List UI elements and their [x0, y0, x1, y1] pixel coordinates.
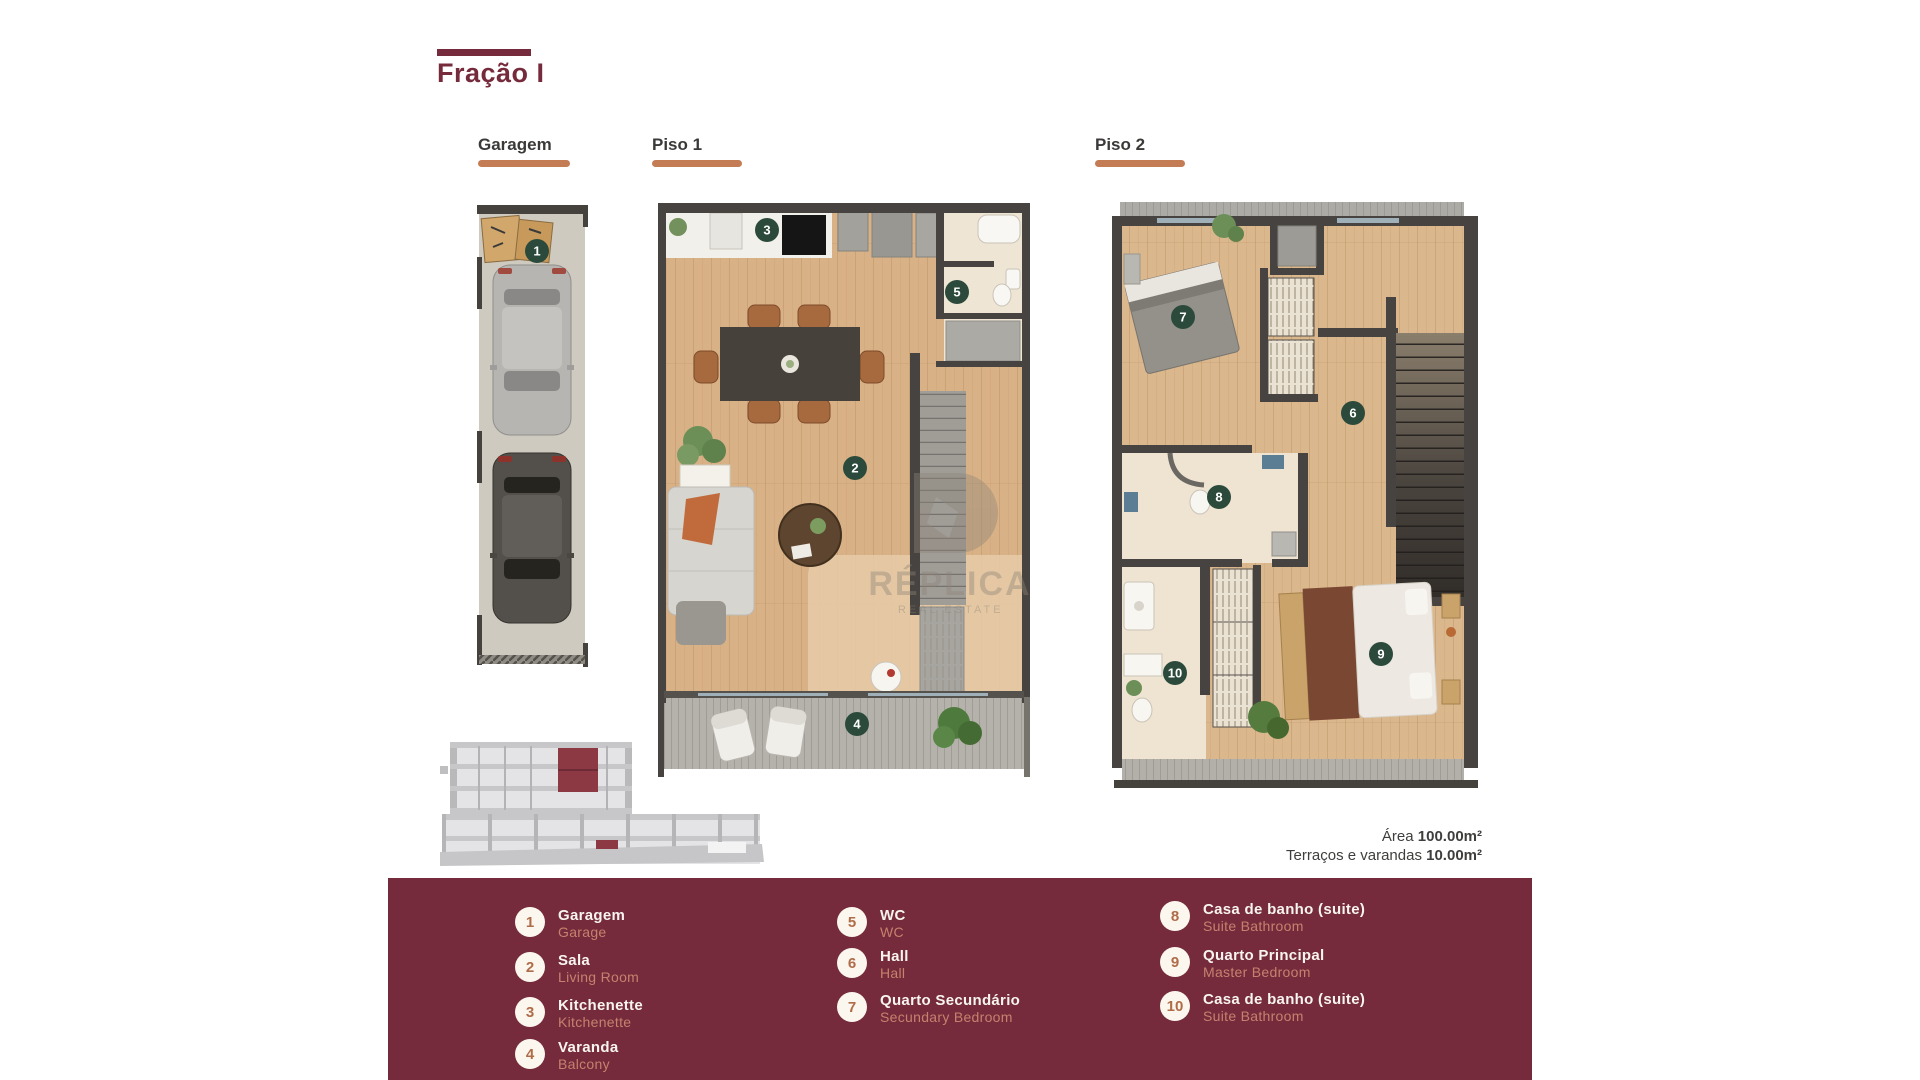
legend-item-wc: 5 WCWC	[837, 907, 906, 941]
stairs	[1396, 333, 1464, 605]
legend-item-casa-de-banho-10: 10 Casa de banho (suite)Suite Bathroom	[1160, 991, 1365, 1025]
svg-text:6: 6	[1349, 406, 1356, 421]
sink	[1262, 455, 1284, 469]
badge-5: 5	[945, 280, 969, 304]
page-title: Fração I	[437, 58, 545, 89]
badge-4: 4	[845, 712, 869, 736]
wardrobe-master	[1213, 569, 1253, 727]
plant-small	[1126, 680, 1142, 696]
terrace-line: Terraços e varandas 10.00m²	[1286, 846, 1482, 865]
nightstand	[1442, 594, 1460, 618]
legend-item-garagem: 1 GaragemGarage	[515, 907, 625, 941]
legend-item-quarto-principal: 9 Quarto PrincipalMaster Bedroom	[1160, 947, 1325, 981]
nightstand	[1442, 680, 1460, 704]
area-line: Área 100.00m²	[1286, 827, 1482, 846]
legend-item-varanda: 4 VarandaBalcony	[515, 1039, 618, 1073]
legend-item-casa-de-banho-8: 8 Casa de banho (suite)Suite Bathroom	[1160, 901, 1365, 935]
legend-number: 6	[837, 948, 867, 978]
bed-runner	[1303, 586, 1360, 720]
svg-text:2: 2	[851, 461, 858, 476]
shower-tray	[1272, 532, 1296, 556]
area-summary: Área 100.00m² Terraços e varandas 10.00m…	[1286, 827, 1482, 865]
legend-band: 1 GaragemGarage 2 SalaLiving Room 3 Kitc…	[388, 878, 1532, 1080]
badge-8: 8	[1207, 485, 1231, 509]
legend-number: 3	[515, 997, 545, 1027]
page: Fração I Garagem Piso 1 Piso 2	[0, 0, 1920, 1080]
legend-number: 7	[837, 992, 867, 1022]
legend-number: 10	[1160, 991, 1190, 1021]
svg-text:10: 10	[1168, 666, 1182, 681]
plant-small	[669, 218, 687, 236]
cooktop	[782, 215, 826, 255]
underline-piso2	[1095, 160, 1185, 167]
label-garagem: Garagem	[478, 135, 552, 155]
building-elevation	[440, 740, 770, 868]
label-piso2: Piso 2	[1095, 135, 1145, 155]
bed-master	[1279, 582, 1438, 722]
legend-number: 5	[837, 907, 867, 937]
laundry-closet	[946, 321, 1020, 361]
vanity	[1124, 654, 1162, 676]
bathtub	[978, 215, 1020, 243]
car-silver	[490, 265, 574, 435]
floor-plan-piso1: RÉPLICA REAL ESTATE 3 5 2 4	[658, 203, 1030, 780]
svg-text:8: 8	[1215, 490, 1222, 505]
legend-number: 1	[515, 907, 545, 937]
watermark-tagline: REAL ESTATE	[898, 604, 1004, 616]
round-side-table	[871, 662, 901, 692]
floor-plan-piso2: 7 6 8 10 9	[1112, 202, 1478, 790]
svg-text:5: 5	[953, 285, 960, 300]
watermark-name: RÉPLICA	[868, 565, 1030, 603]
lounge-chair	[764, 705, 807, 758]
highlighted-unit	[558, 748, 598, 792]
desk	[1124, 254, 1140, 284]
toilet	[993, 284, 1011, 306]
highlighted-garage	[596, 840, 618, 849]
svg-text:7: 7	[1179, 310, 1186, 325]
legend-number: 8	[1160, 901, 1190, 931]
legend-item-kitchenette: 3 KitchenetteKitchenette	[515, 997, 643, 1031]
svg-text:1: 1	[533, 244, 540, 259]
svg-text:9: 9	[1377, 647, 1384, 662]
legend-number: 9	[1160, 947, 1190, 977]
legend-number: 4	[515, 1039, 545, 1069]
label-piso1: Piso 1	[652, 135, 702, 155]
pillow	[1409, 672, 1432, 699]
legend-item-sala: 2 SalaLiving Room	[515, 952, 639, 986]
toilet	[1132, 698, 1152, 722]
svg-text:4: 4	[853, 717, 861, 732]
legend-item-quarto-secundario: 7 Quarto SecundárioSecundary Bedroom	[837, 992, 1020, 1026]
hall-closets	[838, 211, 940, 257]
pillow	[1405, 588, 1428, 615]
badge-3: 3	[755, 218, 779, 242]
title-accent-bar	[437, 49, 531, 56]
bathroom-suite-10	[1122, 565, 1210, 759]
badge-7: 7	[1171, 305, 1195, 329]
kitchen-counter	[664, 211, 832, 258]
car-dark	[490, 453, 574, 623]
badge-9: 9	[1369, 642, 1393, 666]
badge-10: 10	[1163, 661, 1187, 685]
badge-6: 6	[1341, 401, 1365, 425]
floor-plan-garagem: 1	[477, 205, 588, 673]
badge-1: 1	[525, 239, 549, 263]
svg-text:3: 3	[763, 223, 770, 238]
badge-2: 2	[843, 456, 867, 480]
underline-garagem	[478, 160, 570, 167]
coffee-table	[779, 504, 841, 566]
underline-piso1	[652, 160, 742, 167]
legend-item-hall: 6 HallHall	[837, 948, 909, 982]
legend-number: 2	[515, 952, 545, 982]
toilet	[1190, 490, 1210, 514]
